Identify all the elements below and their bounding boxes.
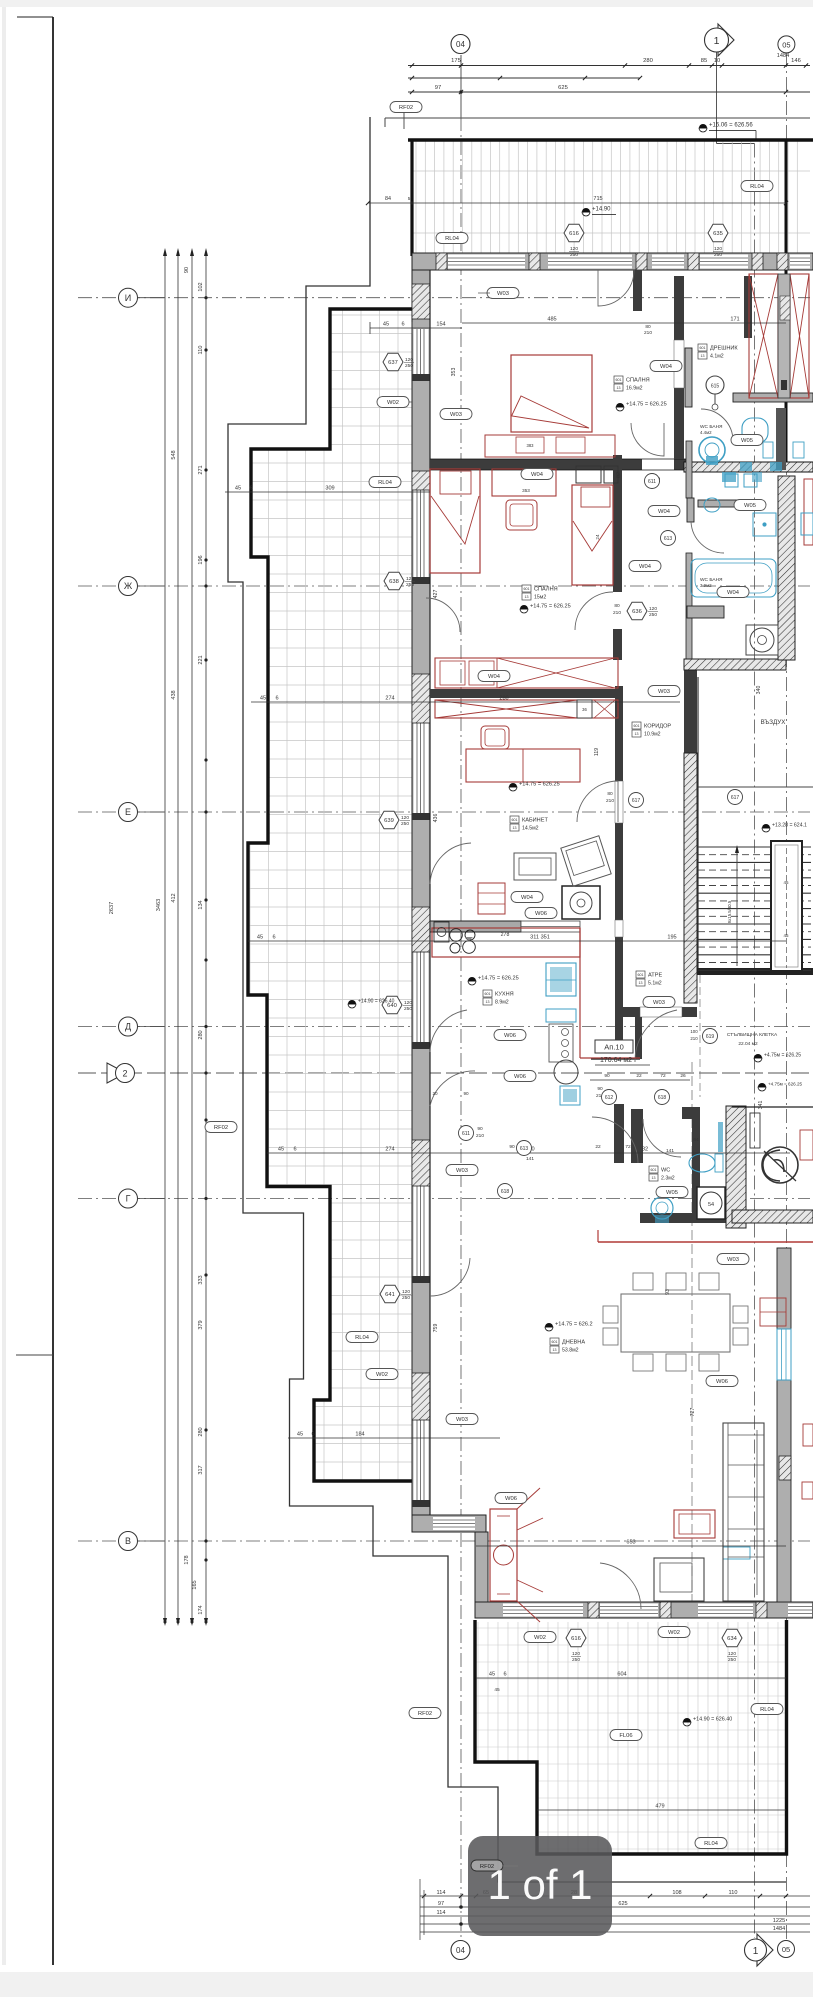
- svg-text:119: 119: [594, 748, 600, 756]
- svg-text:45: 45: [297, 1432, 303, 1438]
- svg-text:110: 110: [729, 1890, 738, 1896]
- svg-text:93: 93: [665, 1289, 671, 1295]
- svg-text:RF02: RF02: [214, 1125, 228, 1131]
- svg-text:14.5м2: 14.5м2: [522, 826, 539, 832]
- svg-text:171: 171: [730, 317, 739, 323]
- svg-text:10.9м2: 10.9м2: [644, 732, 661, 738]
- svg-text:250: 250: [402, 1295, 410, 1301]
- svg-text:759: 759: [433, 1324, 439, 1333]
- svg-text:+13.28 = 624.1: +13.28 = 624.1: [772, 823, 807, 829]
- svg-text:274: 274: [385, 696, 394, 702]
- svg-text:RL04: RL04: [355, 1335, 370, 1341]
- svg-text:637: 637: [388, 360, 398, 366]
- svg-text:05: 05: [782, 1945, 790, 1954]
- svg-text:W04: W04: [488, 674, 501, 680]
- svg-text:5.1м2: 5.1м2: [648, 981, 662, 987]
- svg-text:45: 45: [257, 935, 263, 941]
- svg-text:45: 45: [260, 696, 266, 702]
- svg-text:120: 120: [728, 1651, 736, 1657]
- svg-text:340: 340: [756, 686, 762, 695]
- svg-text:601: 601: [700, 346, 706, 350]
- svg-text:+15.06 = 626.56: +15.06 = 626.56: [709, 123, 753, 129]
- svg-text:617: 617: [731, 795, 740, 801]
- svg-text:80: 80: [614, 603, 620, 609]
- svg-text:6: 6: [503, 1672, 506, 1678]
- svg-text:КУХНЯ: КУХНЯ: [495, 992, 514, 998]
- svg-text:W03: W03: [456, 1417, 468, 1423]
- svg-text:641: 641: [385, 1292, 395, 1298]
- svg-text:W06: W06: [716, 1379, 728, 1385]
- svg-text:W03: W03: [450, 412, 462, 418]
- svg-text:90: 90: [604, 1073, 610, 1079]
- svg-text:601: 601: [512, 818, 518, 822]
- svg-text:196: 196: [198, 555, 204, 564]
- svg-text:274: 274: [385, 1147, 394, 1153]
- svg-text:22: 22: [636, 1073, 642, 1079]
- svg-text:120: 120: [402, 1289, 410, 1295]
- svg-text:6: 6: [293, 1147, 296, 1153]
- svg-text:210: 210: [476, 1133, 484, 1139]
- svg-text:250: 250: [572, 1657, 580, 1663]
- svg-text:120: 120: [714, 246, 722, 252]
- svg-text:АТРЕ: АТРЕ: [648, 973, 662, 979]
- svg-text:22: 22: [595, 1144, 601, 1150]
- svg-text:174: 174: [198, 1605, 204, 1614]
- svg-text:+14.75 = 626.25: +14.75 = 626.25: [519, 782, 560, 788]
- svg-text:КОРИДОР: КОРИДОР: [644, 724, 671, 730]
- svg-text:479: 479: [655, 1804, 664, 1810]
- svg-text:Е: Е: [125, 807, 131, 817]
- svg-text:120: 120: [401, 815, 409, 821]
- svg-text:250: 250: [570, 252, 578, 258]
- svg-text:178: 178: [184, 1555, 190, 1564]
- svg-text:W04: W04: [639, 564, 652, 570]
- svg-text:280: 280: [198, 1427, 204, 1436]
- svg-text:И: И: [125, 293, 131, 303]
- svg-text:W04: W04: [660, 364, 673, 370]
- svg-text:141: 141: [526, 1156, 534, 1162]
- svg-text:6: 6: [249, 486, 252, 492]
- svg-text:04: 04: [456, 40, 465, 49]
- svg-text:6: 6: [311, 1432, 314, 1438]
- svg-text:438: 438: [171, 690, 177, 699]
- svg-text:653: 653: [626, 1540, 635, 1546]
- svg-text:333: 333: [198, 1275, 204, 1284]
- svg-text:639: 639: [384, 818, 394, 824]
- svg-text:05: 05: [782, 41, 790, 50]
- svg-text:W04: W04: [531, 472, 544, 478]
- svg-text:271: 271: [198, 465, 204, 474]
- svg-text:RL04: RL04: [750, 184, 765, 190]
- svg-text:634: 634: [727, 1636, 737, 1642]
- svg-text:45: 45: [235, 486, 241, 492]
- svg-text:Ап.10: Ап.10: [604, 1043, 624, 1052]
- svg-text:618: 618: [658, 1095, 667, 1101]
- svg-text:13: 13: [553, 1348, 557, 1352]
- svg-text:W03: W03: [456, 1168, 468, 1174]
- svg-text:W04: W04: [658, 509, 671, 515]
- svg-text:110: 110: [198, 346, 204, 355]
- svg-text:W05: W05: [744, 503, 756, 509]
- svg-text:165: 165: [192, 1580, 198, 1589]
- svg-text:210: 210: [613, 610, 621, 616]
- svg-text:RL04: RL04: [445, 236, 460, 242]
- svg-text:СПАЛНЯ: СПАЛНЯ: [534, 587, 558, 593]
- svg-text:W05: W05: [666, 1190, 678, 1196]
- svg-text:250: 250: [401, 821, 409, 827]
- svg-text:6: 6: [272, 935, 275, 941]
- svg-text:619: 619: [706, 1034, 715, 1040]
- svg-text:+14.75 = 626.25: +14.75 = 626.25: [530, 604, 571, 610]
- svg-text:611: 611: [462, 1131, 470, 1137]
- svg-text:W02: W02: [534, 1635, 546, 1641]
- svg-text:638: 638: [389, 579, 399, 585]
- svg-text:13: 13: [525, 595, 529, 599]
- svg-text:+4.75м = 626.25: +4.75м = 626.25: [768, 1082, 803, 1087]
- svg-text:618: 618: [501, 1189, 510, 1195]
- svg-text:353: 353: [522, 488, 530, 493]
- svg-text:114: 114: [437, 1910, 446, 1916]
- svg-text:W03: W03: [727, 1257, 739, 1263]
- svg-text:100: 100: [690, 1029, 698, 1034]
- svg-text:604: 604: [617, 1672, 626, 1678]
- svg-text:250: 250: [649, 612, 657, 618]
- svg-text:613: 613: [664, 536, 673, 542]
- svg-text:45: 45: [489, 1672, 495, 1678]
- svg-text:36: 36: [582, 707, 587, 712]
- svg-text:W04: W04: [727, 590, 740, 596]
- svg-text:8.9м2: 8.9м2: [495, 1000, 509, 1006]
- svg-text:80: 80: [645, 324, 651, 330]
- svg-text:9x15.5/30.5: 9x15.5/30.5: [727, 900, 732, 923]
- svg-text:601: 601: [651, 1168, 657, 1172]
- svg-text:3.9м2: 3.9м2: [700, 583, 712, 588]
- svg-text:СПАЛНЯ: СПАЛНЯ: [626, 378, 650, 384]
- svg-text:311 351: 311 351: [530, 935, 550, 941]
- svg-text:+14.90 = 626.40: +14.90 = 626.40: [693, 1717, 732, 1723]
- svg-text:636: 636: [632, 609, 642, 615]
- svg-text:20: 20: [432, 1091, 438, 1096]
- svg-text:13: 13: [639, 981, 643, 985]
- svg-text:45: 45: [278, 1147, 284, 1153]
- svg-text:90: 90: [184, 267, 190, 273]
- svg-text:601: 601: [616, 378, 622, 382]
- svg-text:250: 250: [728, 1657, 736, 1663]
- svg-text:13: 13: [617, 386, 621, 390]
- svg-text:13: 13: [513, 826, 517, 830]
- svg-text:601: 601: [485, 992, 491, 996]
- svg-text:120: 120: [406, 576, 414, 582]
- svg-text:250: 250: [714, 252, 722, 258]
- svg-text:412: 412: [171, 893, 177, 902]
- svg-text:Г: Г: [126, 1194, 131, 1204]
- svg-text:134: 134: [198, 900, 204, 909]
- svg-text:141: 141: [666, 1148, 674, 1154]
- svg-text:615: 615: [711, 384, 720, 390]
- svg-text:W06: W06: [514, 1074, 526, 1080]
- svg-text:+14.90 = 626.40: +14.90 = 626.40: [358, 999, 395, 1005]
- svg-text:54: 54: [708, 1202, 714, 1208]
- svg-text:120: 120: [405, 357, 413, 363]
- svg-text:26: 26: [680, 1073, 686, 1079]
- svg-text:15м2: 15м2: [534, 595, 546, 601]
- svg-text:3463: 3463: [156, 899, 162, 911]
- svg-text:715: 715: [593, 196, 602, 202]
- svg-text:W02: W02: [376, 1372, 388, 1378]
- svg-text:90: 90: [509, 1144, 515, 1150]
- svg-text:W02: W02: [668, 1630, 680, 1636]
- svg-text:80: 80: [607, 791, 613, 797]
- svg-text:635: 635: [713, 231, 723, 237]
- svg-text:84: 84: [385, 196, 391, 202]
- svg-text:В: В: [125, 1536, 131, 1546]
- svg-text:W05: W05: [741, 438, 753, 444]
- svg-text:W04: W04: [521, 895, 534, 901]
- svg-text:2.3м2: 2.3м2: [661, 1176, 675, 1182]
- svg-text:КАБИНЕТ: КАБИНЕТ: [522, 818, 548, 824]
- svg-text:6: 6: [401, 322, 404, 328]
- svg-text:45: 45: [783, 880, 789, 885]
- svg-text:97: 97: [435, 85, 441, 91]
- svg-text:210: 210: [690, 1036, 698, 1041]
- svg-text:RF02: RF02: [399, 105, 413, 111]
- svg-text:278: 278: [501, 932, 510, 938]
- svg-text:120: 120: [572, 1651, 580, 1657]
- svg-text:W03: W03: [658, 689, 670, 695]
- svg-text:WC: WC: [661, 1168, 670, 1174]
- svg-text:1: 1: [753, 1946, 759, 1957]
- svg-text:2: 2: [122, 1069, 127, 1079]
- svg-text:W03: W03: [653, 1000, 665, 1006]
- svg-text:6: 6: [275, 696, 278, 702]
- svg-text:RL04: RL04: [704, 1841, 719, 1847]
- svg-text:195: 195: [667, 935, 676, 941]
- svg-text:90: 90: [477, 1126, 483, 1132]
- svg-text:601: 601: [638, 973, 644, 977]
- svg-text:13: 13: [635, 732, 639, 736]
- svg-text:2637: 2637: [109, 902, 115, 914]
- svg-text:427: 427: [433, 590, 439, 599]
- svg-text:RL04: RL04: [760, 1707, 775, 1713]
- svg-text:45: 45: [383, 322, 389, 328]
- svg-text:RF02: RF02: [418, 1711, 432, 1717]
- svg-text:4.1м2: 4.1м2: [710, 354, 724, 360]
- svg-text:175: 175: [451, 58, 461, 64]
- svg-text:82: 82: [616, 472, 622, 478]
- svg-text:85: 85: [701, 58, 707, 64]
- svg-text:Д: Д: [125, 1022, 131, 1032]
- svg-text:727: 727: [690, 1408, 696, 1417]
- svg-text:114: 114: [437, 1890, 446, 1896]
- svg-text:210: 210: [606, 798, 614, 804]
- svg-text:1: 1: [714, 35, 720, 47]
- svg-text:W06: W06: [505, 1496, 517, 1502]
- svg-text:485: 485: [547, 317, 556, 323]
- svg-text:97: 97: [438, 1901, 444, 1907]
- svg-text:72: 72: [625, 1144, 631, 1150]
- svg-text:64: 64: [693, 1137, 699, 1143]
- svg-text:210: 210: [644, 330, 652, 336]
- svg-text:90: 90: [597, 1086, 603, 1092]
- svg-text:436: 436: [433, 814, 439, 823]
- svg-text:221: 221: [198, 655, 204, 664]
- svg-text:613: 613: [520, 1146, 529, 1152]
- svg-text:45: 45: [494, 1687, 500, 1693]
- svg-text:45: 45: [783, 933, 789, 938]
- svg-text:616: 616: [569, 231, 579, 237]
- svg-text:FL06: FL06: [619, 1733, 632, 1739]
- svg-text:548: 548: [171, 450, 177, 459]
- svg-text:146: 146: [791, 58, 801, 64]
- svg-text:625: 625: [558, 85, 568, 91]
- svg-text:+14.75 = 626.25: +14.75 = 626.25: [626, 402, 667, 408]
- svg-text:W06: W06: [535, 911, 547, 917]
- svg-text:ВЪЗДУХ: ВЪЗДУХ: [761, 719, 786, 726]
- svg-text:1484: 1484: [773, 1926, 785, 1932]
- svg-text:Ж: Ж: [124, 581, 133, 591]
- svg-text:341: 341: [758, 1101, 764, 1110]
- svg-text:317: 317: [198, 1465, 204, 1474]
- svg-text:+14.75 = 626.25: +14.75 = 626.25: [478, 976, 519, 982]
- svg-text:170.64 м2: 170.64 м2: [600, 1057, 632, 1064]
- svg-text:120: 120: [404, 1000, 412, 1006]
- svg-text:ДНЕВНА: ДНЕВНА: [562, 1340, 585, 1346]
- svg-text:53.8м2: 53.8м2: [562, 1348, 579, 1354]
- svg-text:353: 353: [451, 368, 457, 377]
- svg-text:4.4м2: 4.4м2: [700, 430, 712, 435]
- svg-text:184: 184: [355, 1432, 364, 1438]
- svg-text:280: 280: [499, 696, 508, 702]
- svg-text:617: 617: [632, 798, 641, 804]
- svg-text:W02: W02: [387, 400, 399, 406]
- svg-text:16.9м2: 16.9м2: [626, 386, 643, 392]
- svg-text:+4.75м = 626.25: +4.75м = 626.25: [764, 1053, 801, 1059]
- svg-text:RL04: RL04: [378, 480, 393, 486]
- svg-text:82: 82: [642, 1147, 648, 1153]
- svg-text:601: 601: [552, 1340, 558, 1344]
- svg-text:120: 120: [649, 606, 657, 612]
- svg-text:1225: 1225: [773, 1918, 785, 1924]
- svg-text:601: 601: [634, 724, 640, 728]
- svg-text:+14.90: +14.90: [592, 207, 611, 213]
- svg-text:601: 601: [524, 587, 530, 591]
- svg-text:102: 102: [198, 282, 204, 291]
- svg-text:379: 379: [198, 1320, 204, 1329]
- svg-text:250: 250: [405, 363, 413, 369]
- svg-text:625: 625: [618, 1901, 627, 1907]
- svg-text:72: 72: [660, 1073, 666, 1079]
- svg-text:280: 280: [198, 1030, 204, 1039]
- svg-text:250: 250: [406, 582, 414, 588]
- svg-text:612: 612: [605, 1095, 614, 1101]
- svg-text:22.04 м2: 22.04 м2: [738, 1041, 758, 1047]
- svg-text:СТЪЛБИЩНА КЛЕТКА: СТЪЛБИЩНА КЛЕТКА: [727, 1032, 778, 1038]
- svg-text:13: 13: [701, 354, 705, 358]
- svg-text:383: 383: [527, 443, 535, 448]
- svg-text:W06: W06: [504, 1033, 516, 1039]
- svg-text:24: 24: [595, 534, 600, 540]
- svg-text:ДРЕШНИК: ДРЕШНИК: [710, 346, 738, 352]
- svg-text:1484: 1484: [777, 53, 789, 59]
- svg-text:616: 616: [571, 1636, 581, 1642]
- svg-text:90: 90: [463, 1091, 469, 1096]
- svg-text:611: 611: [648, 479, 656, 485]
- svg-text:04: 04: [456, 1946, 465, 1955]
- svg-text:1 of 1: 1 of 1: [487, 1861, 592, 1908]
- svg-text:10: 10: [714, 58, 720, 64]
- svg-text:250: 250: [404, 1006, 412, 1012]
- svg-text:280: 280: [643, 58, 653, 64]
- svg-text:120: 120: [570, 246, 578, 252]
- svg-text:13: 13: [486, 1000, 490, 1004]
- svg-text:W03: W03: [497, 291, 509, 297]
- svg-text:154: 154: [436, 322, 445, 328]
- svg-text:309: 309: [325, 486, 334, 492]
- svg-text:108: 108: [672, 1890, 681, 1896]
- svg-text:5: 5: [408, 196, 411, 201]
- svg-text:+14.75 = 626.2: +14.75 = 626.2: [555, 1322, 593, 1328]
- svg-text:13: 13: [652, 1176, 656, 1180]
